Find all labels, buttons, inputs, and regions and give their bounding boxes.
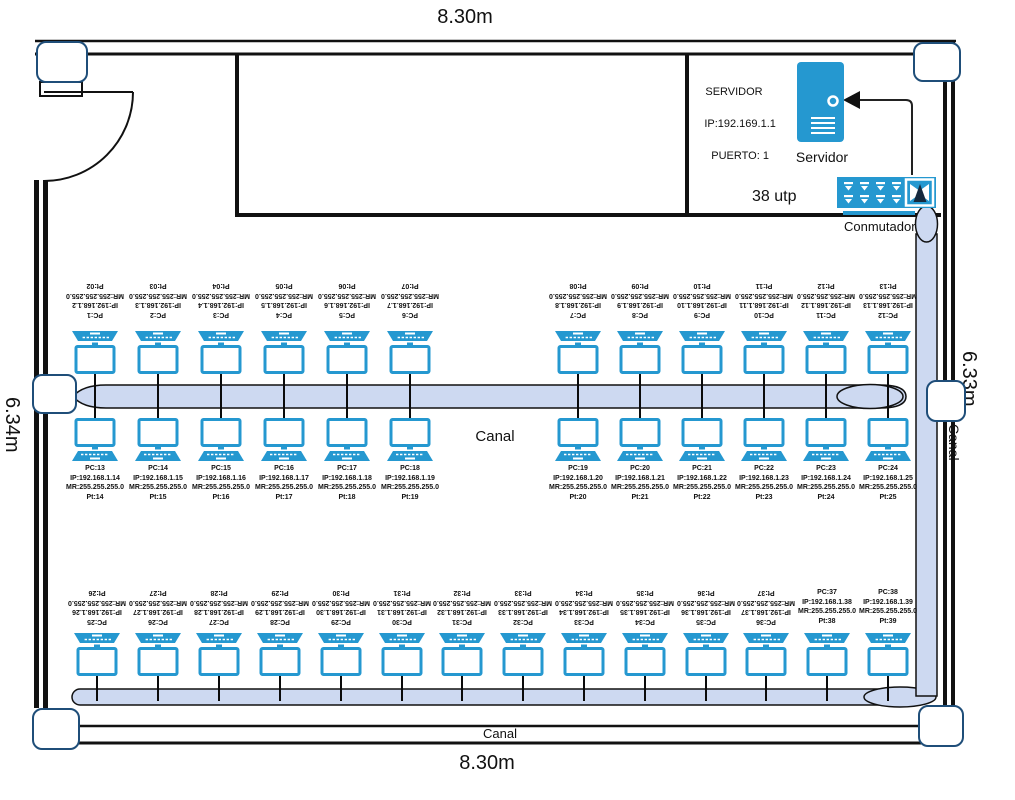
pc-label-line: PC:6 bbox=[368, 310, 452, 320]
utp-cable-line bbox=[639, 396, 641, 419]
pc-label-line: Pt:25 bbox=[846, 493, 930, 503]
pc-label-line: MR:255.255.255.0 bbox=[846, 291, 930, 301]
utp-cable-line bbox=[218, 676, 220, 701]
pc-label-line: IP:192.168.1.19 bbox=[368, 474, 452, 484]
server-info-line1: SERVIDOR bbox=[705, 86, 762, 98]
corner-box-top-left bbox=[36, 41, 88, 83]
workstation-icon bbox=[863, 632, 913, 676]
workstation-icon bbox=[615, 330, 665, 374]
junction-box-right bbox=[926, 380, 966, 422]
utp-cable-line bbox=[701, 396, 703, 419]
utp-cable-line bbox=[577, 396, 579, 419]
utp-cable-line bbox=[96, 676, 98, 701]
workstation-icon bbox=[801, 330, 851, 374]
pc-label-line: IP:192.168.1.7 bbox=[368, 300, 452, 310]
workstation-icon bbox=[863, 330, 913, 374]
utp-cable-line bbox=[157, 396, 159, 419]
workstation-icon bbox=[259, 330, 309, 374]
workstation-icon bbox=[677, 418, 727, 462]
utp-cable-line bbox=[705, 676, 707, 701]
workstation-icon bbox=[739, 330, 789, 374]
utp-cable-line bbox=[346, 396, 348, 419]
utp-cable-line bbox=[826, 676, 828, 701]
utp-cable-line bbox=[157, 676, 159, 701]
utp-cable-line bbox=[887, 676, 889, 701]
canal-middle-label: Canal bbox=[455, 428, 535, 445]
utp-cable-line bbox=[279, 676, 281, 701]
workstation-icon bbox=[322, 330, 372, 374]
pc-label-line: MR:255.255.255.0 bbox=[846, 483, 930, 493]
utp-cable-line bbox=[340, 676, 342, 701]
pc-label: PC:38IP:192.168.1.39MR:255.255.255.0Pt:3… bbox=[846, 588, 930, 626]
server-caption: Servidor bbox=[780, 149, 864, 165]
workstation-icon bbox=[194, 632, 244, 676]
utp-cable-line bbox=[94, 396, 96, 419]
workstation-icon bbox=[863, 418, 913, 462]
workstation-icon bbox=[553, 418, 603, 462]
junction-box-left bbox=[32, 374, 77, 414]
workstation-icon bbox=[196, 418, 246, 462]
utp-cable-line bbox=[401, 676, 403, 701]
utp-cable-line bbox=[644, 676, 646, 701]
pc-label-line: MR:255.255.255.0 bbox=[846, 607, 930, 617]
workstation-icon bbox=[437, 632, 487, 676]
pc-label-line: IP:192.168.1.13 bbox=[846, 300, 930, 310]
pc-label-line: PC:12 bbox=[846, 310, 930, 320]
switch-shadow-bar bbox=[843, 211, 915, 215]
workstation-icon bbox=[255, 632, 305, 676]
workstation-icon bbox=[802, 632, 852, 676]
corner-box-bottom-left bbox=[32, 708, 80, 750]
workstation-icon bbox=[70, 330, 120, 374]
workstation-icon bbox=[498, 632, 548, 676]
utp-cable-line bbox=[461, 676, 463, 701]
pc-label-line: IP:192.168.1.25 bbox=[846, 474, 930, 484]
server-info-text: SERVIDOR IP:192.169.1.1 PUERTO: 1 bbox=[683, 84, 785, 164]
pc-label-line: Pt:07 bbox=[368, 281, 452, 291]
pc-label-line: PC:38 bbox=[846, 588, 930, 598]
workstation-icon bbox=[385, 418, 435, 462]
workstation-icon bbox=[133, 418, 183, 462]
pc-label: PC:12IP:192.168.1.13MR:255.255.255.0Pt:1… bbox=[846, 281, 930, 319]
workstation-icon bbox=[615, 418, 665, 462]
pc-nodes-layer: PC:1IP:192.168.1.2MR:255.255.255.0Pt:02 … bbox=[0, 0, 1015, 800]
pc-label: PC:6IP:192.168.1.7MR:255.255.255.0Pt:07 bbox=[368, 281, 452, 319]
utp-cable-line bbox=[583, 676, 585, 701]
workstation-icon bbox=[72, 632, 122, 676]
workstation-icon bbox=[677, 330, 727, 374]
pc-label-line: Pt:39 bbox=[846, 617, 930, 627]
pc-label-line: Pt:19 bbox=[368, 493, 452, 503]
pc-label-line: PC:24 bbox=[846, 464, 930, 474]
utp-cable-line bbox=[220, 396, 222, 419]
workstation-icon bbox=[133, 330, 183, 374]
utp-cable-line bbox=[825, 396, 827, 419]
pc-label-line: MR:255.255.255.0 bbox=[368, 291, 452, 301]
workstation-icon bbox=[259, 418, 309, 462]
workstation-icon bbox=[196, 330, 246, 374]
workstation-icon bbox=[801, 418, 851, 462]
workstation-icon bbox=[553, 330, 603, 374]
utp-cable-line bbox=[522, 676, 524, 701]
workstation-icon bbox=[620, 632, 670, 676]
utp-cable-line bbox=[765, 676, 767, 701]
workstation-icon bbox=[70, 418, 120, 462]
server-info-line3: PUERTO: 1 bbox=[711, 150, 769, 162]
canal-bottom-label: Canal bbox=[440, 727, 560, 742]
pc-label-line: PC:18 bbox=[368, 464, 452, 474]
pc-label-line: Pt:13 bbox=[846, 281, 930, 291]
workstation-icon bbox=[559, 632, 609, 676]
workstation-icon bbox=[741, 632, 791, 676]
workstation-icon bbox=[133, 632, 183, 676]
corner-box-top-right bbox=[913, 42, 961, 82]
pc-label-line: MR:255.255.255.0 bbox=[368, 483, 452, 493]
workstation-icon bbox=[322, 418, 372, 462]
workstation-icon bbox=[681, 632, 731, 676]
corner-box-bottom-right bbox=[918, 705, 964, 747]
pc-label: PC:24IP:192.168.1.25MR:255.255.255.0Pt:2… bbox=[846, 464, 930, 502]
network-floor-plan: 8.30m 8.30m 6.34m 6.33m Canal Canal Cana… bbox=[0, 0, 1015, 800]
workstation-icon bbox=[385, 330, 435, 374]
utp-cable-line bbox=[887, 396, 889, 419]
server-tower-icon bbox=[797, 62, 844, 142]
pc-label-line: IP:192.168.1.39 bbox=[846, 598, 930, 608]
utp-count-label: 38 utp bbox=[752, 188, 796, 206]
utp-cable-line bbox=[763, 396, 765, 419]
pc-label: PC:18IP:192.168.1.19MR:255.255.255.0Pt:1… bbox=[368, 464, 452, 502]
network-switch-icon bbox=[837, 177, 936, 208]
canal-right-label: Canal bbox=[946, 424, 962, 461]
workstation-icon bbox=[377, 632, 427, 676]
workstation-icon bbox=[739, 418, 789, 462]
server-info-line2: IP:192.169.1.1 bbox=[704, 118, 776, 130]
utp-cable-line bbox=[409, 396, 411, 419]
workstation-icon bbox=[316, 632, 366, 676]
utp-cable-line bbox=[283, 396, 285, 419]
